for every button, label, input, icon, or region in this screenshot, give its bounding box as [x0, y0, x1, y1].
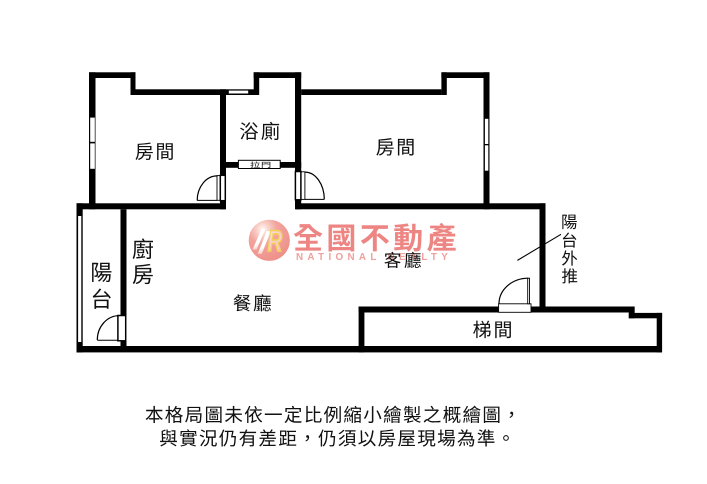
svg-text:R: R: [267, 225, 282, 258]
svg-text:NATIONAL REALTY: NATIONAL REALTY: [296, 252, 452, 263]
